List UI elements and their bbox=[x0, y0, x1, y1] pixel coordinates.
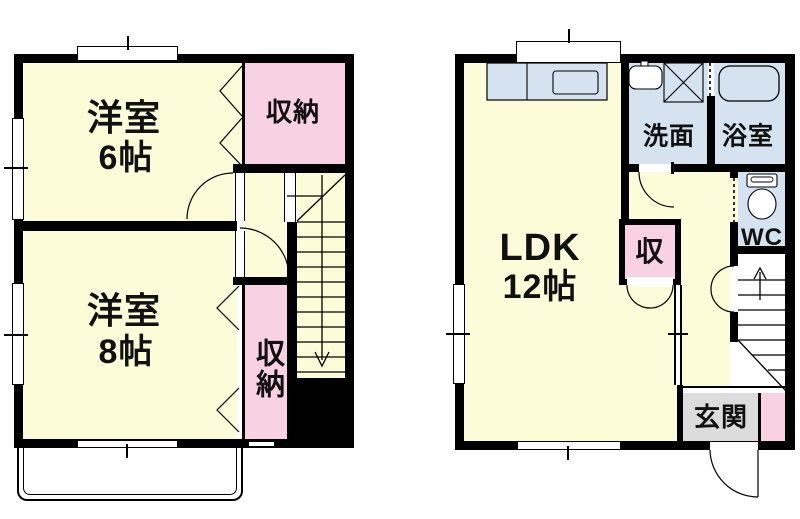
bifold-door-closet-top bbox=[220, 66, 242, 116]
label-bathroom: 浴室 bbox=[722, 125, 774, 150]
bifold-door-closet-side bbox=[217, 286, 239, 330]
label-entrance: 玄関 bbox=[694, 404, 748, 430]
kitchen-counter-icon bbox=[487, 63, 607, 100]
label-closet-side: 収納 bbox=[253, 338, 282, 400]
floor-plan-canvas: 洋室 6帖 収納 洋室 8帖 収納 LDK 12帖 洗面 浴室 WC 収 玄関 bbox=[0, 0, 800, 519]
staircase-upper bbox=[287, 175, 345, 372]
washbasin-icon bbox=[629, 61, 662, 89]
label-bedroom8-name: 洋室 bbox=[87, 293, 161, 329]
door-arc-stairhall-top bbox=[711, 266, 734, 289]
door-arc-storage-right bbox=[650, 285, 673, 308]
symbols-overlay bbox=[0, 0, 800, 519]
label-bedroom8-size: 8帖 bbox=[99, 335, 154, 369]
door-arc-bedroom6 bbox=[187, 173, 233, 219]
toilet-icon bbox=[747, 174, 777, 219]
door-arc-washroom bbox=[639, 172, 674, 207]
bifold-door-closet-top bbox=[220, 118, 242, 166]
label-closet-top: 収納 bbox=[266, 99, 320, 125]
staircase-lower bbox=[738, 268, 786, 391]
label-ldk-name: LDK bbox=[499, 229, 580, 267]
label-bedroom6-size: 6帖 bbox=[99, 141, 154, 175]
label-wc: WC bbox=[741, 226, 783, 250]
door-arc-entrance bbox=[710, 450, 758, 497]
washing-machine-pan-icon bbox=[664, 63, 703, 102]
label-washroom: 洗面 bbox=[643, 125, 695, 150]
door-arc-stairhall-bottom bbox=[711, 289, 734, 312]
label-ldk-size: 12帖 bbox=[503, 270, 578, 304]
label-bedroom6-name: 洋室 bbox=[87, 100, 161, 136]
bifold-door-closet-side bbox=[217, 388, 239, 432]
bathtub-icon bbox=[719, 66, 779, 101]
door-arc-bedroom8 bbox=[240, 228, 289, 277]
door-arc-storage-left bbox=[627, 285, 650, 308]
label-storage: 収 bbox=[635, 238, 664, 266]
